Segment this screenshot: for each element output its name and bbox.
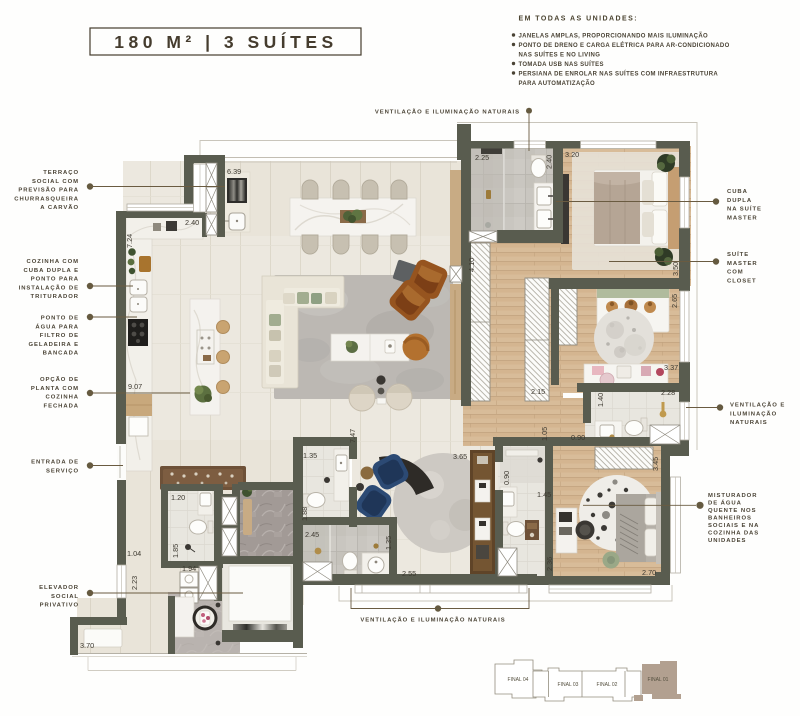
svg-text:PONTO DE DRENO E CARGA ELÉTRIC: PONTO DE DRENO E CARGA ELÉTRICA PARA AR-… bbox=[519, 41, 730, 49]
svg-text:GELADEIRA E: GELADEIRA E bbox=[29, 342, 80, 348]
svg-text:OPÇÃO DE: OPÇÃO DE bbox=[40, 376, 79, 383]
svg-text:QUENTE NOS: QUENTE NOS bbox=[708, 508, 756, 514]
svg-text:PARA AUTOMATIZAÇÃO: PARA AUTOMATIZAÇÃO bbox=[519, 80, 596, 87]
svg-text:CUBA: CUBA bbox=[727, 189, 748, 195]
svg-text:3.70: 3.70 bbox=[80, 641, 94, 650]
svg-text:COZINHA DAS: COZINHA DAS bbox=[708, 531, 759, 537]
svg-text:TOMADA USB NAS SUÍTES: TOMADA USB NAS SUÍTES bbox=[519, 60, 604, 68]
svg-text:EM TODAS AS UNIDADES:: EM TODAS AS UNIDADES: bbox=[519, 16, 639, 23]
svg-text:2.40: 2.40 bbox=[545, 155, 554, 169]
svg-text:CUBA DUPLA E: CUBA DUPLA E bbox=[24, 268, 79, 274]
svg-text:3.37: 3.37 bbox=[664, 363, 678, 372]
svg-text:180 M² | 3 SUÍTES: 180 M² | 3 SUÍTES bbox=[114, 31, 337, 52]
svg-text:MASTER: MASTER bbox=[727, 215, 758, 221]
svg-text:7.47: 7.47 bbox=[348, 429, 357, 443]
svg-text:PONTO PARA: PONTO PARA bbox=[31, 277, 79, 283]
svg-text:SOCIAL: SOCIAL bbox=[51, 594, 79, 600]
svg-text:1.85: 1.85 bbox=[171, 544, 180, 558]
svg-text:UNIDADES: UNIDADES bbox=[708, 538, 746, 544]
svg-text:FILTRO DE: FILTRO DE bbox=[40, 333, 79, 339]
svg-text:ELEVADOR: ELEVADOR bbox=[39, 585, 79, 591]
svg-text:3.50: 3.50 bbox=[671, 262, 680, 276]
svg-text:2.40: 2.40 bbox=[185, 218, 199, 227]
svg-text:ILUMINAÇÃO: ILUMINAÇÃO bbox=[730, 410, 777, 417]
svg-text:PRIVATIVO: PRIVATIVO bbox=[40, 603, 79, 609]
svg-text:NA SUÍTE: NA SUÍTE bbox=[727, 205, 762, 213]
svg-text:2.28: 2.28 bbox=[661, 388, 675, 397]
svg-text:2.15: 2.15 bbox=[531, 387, 545, 396]
svg-text:COM: COM bbox=[727, 270, 744, 276]
svg-text:1.35: 1.35 bbox=[303, 451, 317, 460]
svg-text:BANCADA: BANCADA bbox=[43, 351, 79, 357]
svg-text:2.65: 2.65 bbox=[670, 294, 679, 308]
svg-text:VENTILAÇÃO E: VENTILAÇÃO E bbox=[730, 402, 785, 409]
svg-text:4.10: 4.10 bbox=[467, 258, 476, 272]
svg-text:FINAL 01: FINAL 01 bbox=[648, 677, 669, 683]
svg-text:FINAL 03: FINAL 03 bbox=[558, 682, 579, 688]
svg-text:NATURAIS: NATURAIS bbox=[730, 420, 768, 426]
svg-text:FECHADA: FECHADA bbox=[44, 403, 79, 409]
svg-text:9.07: 9.07 bbox=[128, 382, 142, 391]
svg-text:0.90: 0.90 bbox=[571, 433, 585, 442]
svg-text:3.20: 3.20 bbox=[565, 150, 579, 159]
svg-text:INSTALAÇÃO DE: INSTALAÇÃO DE bbox=[19, 284, 79, 291]
svg-text:ENTRADA DE: ENTRADA DE bbox=[31, 460, 79, 466]
svg-text:PREVISÃO PARA: PREVISÃO PARA bbox=[18, 187, 79, 194]
svg-text:MASTER: MASTER bbox=[727, 261, 758, 267]
svg-text:VENTILAÇÃO E ILUMINAÇÃO NATURA: VENTILAÇÃO E ILUMINAÇÃO NATURAIS bbox=[375, 109, 520, 116]
svg-text:1.05: 1.05 bbox=[540, 427, 549, 441]
svg-text:PONTO DE: PONTO DE bbox=[41, 316, 79, 322]
svg-text:2.23: 2.23 bbox=[130, 576, 139, 590]
svg-text:2.55: 2.55 bbox=[402, 569, 416, 578]
svg-text:FINAL 04: FINAL 04 bbox=[508, 677, 529, 683]
svg-text:COZINHA: COZINHA bbox=[46, 395, 79, 401]
svg-text:DE ÁGUA: DE ÁGUA bbox=[708, 500, 742, 507]
svg-text:2.25: 2.25 bbox=[475, 153, 489, 162]
svg-text:2.36: 2.36 bbox=[545, 557, 554, 571]
svg-text:ÁGUA PARA: ÁGUA PARA bbox=[35, 323, 79, 330]
svg-text:1.40: 1.40 bbox=[596, 393, 605, 407]
svg-text:6.39: 6.39 bbox=[227, 167, 241, 176]
svg-text:7.24: 7.24 bbox=[125, 234, 134, 248]
svg-text:1.04: 1.04 bbox=[127, 549, 141, 558]
svg-text:0.90: 0.90 bbox=[502, 471, 511, 485]
svg-text:JANELAS AMPLAS, PROPORCIONANDO: JANELAS AMPLAS, PROPORCIONANDO MAIS ILUM… bbox=[519, 32, 709, 39]
svg-text:3.45: 3.45 bbox=[651, 457, 660, 471]
svg-text:TRITURADOR: TRITURADOR bbox=[31, 294, 79, 300]
svg-text:COZINHA COM: COZINHA COM bbox=[27, 259, 79, 265]
svg-text:TERRAÇO: TERRAÇO bbox=[43, 170, 79, 176]
svg-text:A CARVÃO: A CARVÃO bbox=[40, 204, 79, 211]
svg-text:2.70: 2.70 bbox=[642, 568, 656, 577]
svg-text:SOCIAIS E NA: SOCIAIS E NA bbox=[708, 523, 759, 529]
svg-text:BANHEIROS: BANHEIROS bbox=[708, 516, 752, 522]
svg-text:SERVIÇO: SERVIÇO bbox=[46, 468, 79, 474]
svg-text:3.65: 3.65 bbox=[453, 452, 467, 461]
svg-text:2.45: 2.45 bbox=[305, 530, 319, 539]
svg-text:1.20: 1.20 bbox=[171, 493, 185, 502]
svg-text:SUÍTE: SUÍTE bbox=[727, 250, 749, 258]
svg-text:DUPLA: DUPLA bbox=[727, 198, 752, 204]
svg-text:1.45: 1.45 bbox=[537, 490, 551, 499]
svg-text:1.35: 1.35 bbox=[384, 536, 393, 550]
svg-text:1.94: 1.94 bbox=[182, 564, 196, 573]
svg-text:NAS SUÍTES E NO LIVING: NAS SUÍTES E NO LIVING bbox=[519, 50, 601, 58]
svg-text:CHURRASQUEIRA: CHURRASQUEIRA bbox=[14, 196, 79, 202]
svg-text:FINAL 02: FINAL 02 bbox=[597, 682, 618, 688]
svg-text:MISTURADOR: MISTURADOR bbox=[708, 493, 757, 499]
svg-text:1.88: 1.88 bbox=[300, 507, 309, 521]
svg-text:PLANTA COM: PLANTA COM bbox=[31, 386, 79, 392]
svg-text:SOCIAL COM: SOCIAL COM bbox=[32, 179, 79, 185]
svg-text:CLOSET: CLOSET bbox=[727, 278, 757, 284]
svg-text:PERSIANA DE ENROLAR NAS SUÍTES: PERSIANA DE ENROLAR NAS SUÍTES COM INFRA… bbox=[519, 69, 719, 77]
svg-text:VENTILAÇÃO E ILUMINAÇÃO NATURA: VENTILAÇÃO E ILUMINAÇÃO NATURAIS bbox=[360, 617, 505, 624]
